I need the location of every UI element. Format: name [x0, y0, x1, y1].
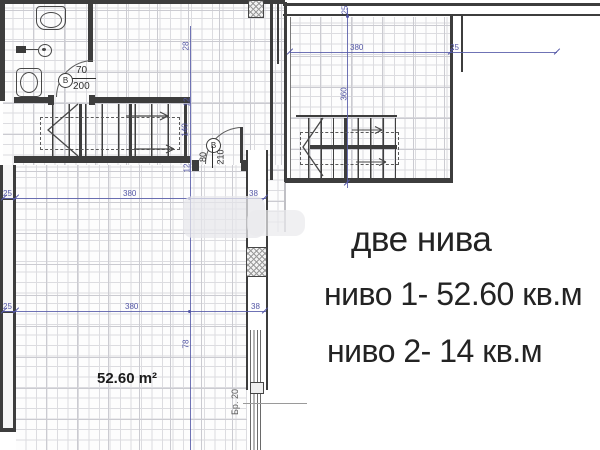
dim-360: 360 [341, 87, 349, 100]
dim-38-lower: 38 [251, 303, 260, 311]
floor-plan-sheet: 70 200 В В 80 210 25 380 [0, 0, 600, 450]
dim-25-right: 25 [450, 44, 459, 52]
room-area-label: 52.60 m² [97, 370, 157, 387]
dim-tick [554, 48, 560, 54]
door2-leaf [240, 127, 243, 163]
level2-area-text: ниво 2- 14 кв.м [327, 333, 542, 370]
listing-title: две нива [351, 220, 491, 260]
stair1-annotations [18, 100, 193, 166]
door1-tag-circle: В [58, 73, 73, 88]
door1-fraction-bar [72, 78, 96, 79]
dim-25-upper: 25 [3, 190, 12, 198]
dim-380-upper: 380 [123, 190, 136, 198]
door2-width-label: 80 [198, 152, 208, 162]
plan2-left-inner-line [290, 17, 291, 180]
plan1-right-wall-b [277, 4, 279, 64]
dim-380-lower: 380 [125, 303, 138, 311]
bathroom-left-wall [0, 0, 5, 101]
watermark-smudge [247, 210, 305, 236]
left-wall-fill [2, 165, 13, 430]
dim-140: 140 [182, 123, 190, 136]
shaft-end-box [250, 382, 264, 394]
dim-380-plan2: 380 [350, 44, 363, 52]
plan2-right-wall-b [461, 16, 463, 72]
dim-25-lower: 25 [3, 303, 12, 311]
dim-28: 28 [182, 42, 190, 51]
dim-12-b: 12 [183, 164, 191, 173]
plan2-left-wall [284, 2, 287, 182]
toilet-bowl-icon [40, 12, 62, 28]
door2-height-label: 210 [216, 149, 226, 164]
bathroom-right-wall [88, 4, 93, 62]
dim-node [346, 15, 349, 18]
shaft-column-hatch [246, 247, 267, 277]
level1-area-text: ниво 1- 52.60 кв.м [324, 276, 582, 313]
plan2-dim-line-horizontal [290, 52, 557, 53]
plan1-dim-line-vertical [190, 26, 191, 450]
plan2-top-wall-inner [283, 14, 600, 16]
left-wall-end-cap [0, 428, 16, 432]
dim-78: 78 [182, 340, 190, 349]
plan2-top-wall-outer [283, 3, 600, 6]
plan1-top-wall [0, 0, 285, 4]
door2-fraction-bar [212, 146, 213, 168]
column-top [248, 0, 264, 18]
left-wall-outer-line [0, 165, 3, 432]
dim-node [188, 310, 191, 313]
stair-ref-label: Бр. 20 [231, 389, 239, 415]
tap-icon [16, 46, 26, 53]
door1-width-label: 70 [76, 65, 87, 76]
stair-ref-leader-line [243, 403, 307, 404]
left-wall-inner-line [13, 165, 16, 432]
plan2-right-wall [450, 16, 453, 183]
plan1-right-wall-a [270, 4, 273, 180]
door1-height-label: 200 [73, 81, 90, 92]
tap-stem [26, 49, 38, 50]
floor-drain-center [42, 48, 46, 51]
sink-basin-icon [20, 72, 38, 93]
dim-25-top: 25 [341, 6, 349, 15]
plan1-dim-line-lower [2, 311, 266, 312]
dim-12-a: 12 [183, 98, 191, 107]
